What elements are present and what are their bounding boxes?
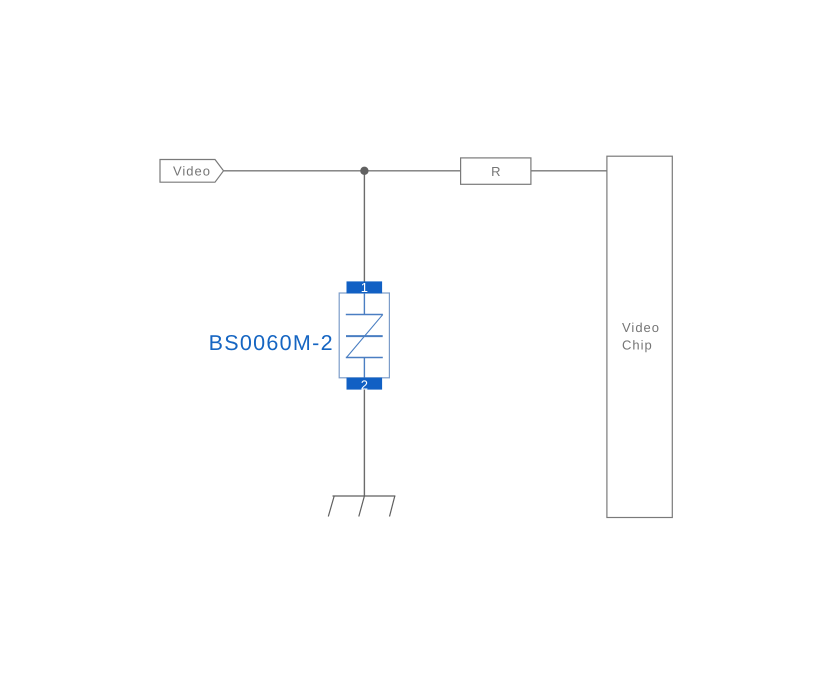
svg-text:Video: Video — [622, 320, 660, 335]
svg-text:1: 1 — [361, 280, 368, 295]
svg-text:Video: Video — [173, 164, 211, 179]
svg-text:2: 2 — [361, 377, 368, 392]
svg-text:R: R — [491, 164, 500, 179]
svg-text:Chip: Chip — [622, 338, 653, 353]
svg-text:BS0060M-2: BS0060M-2 — [209, 331, 334, 355]
